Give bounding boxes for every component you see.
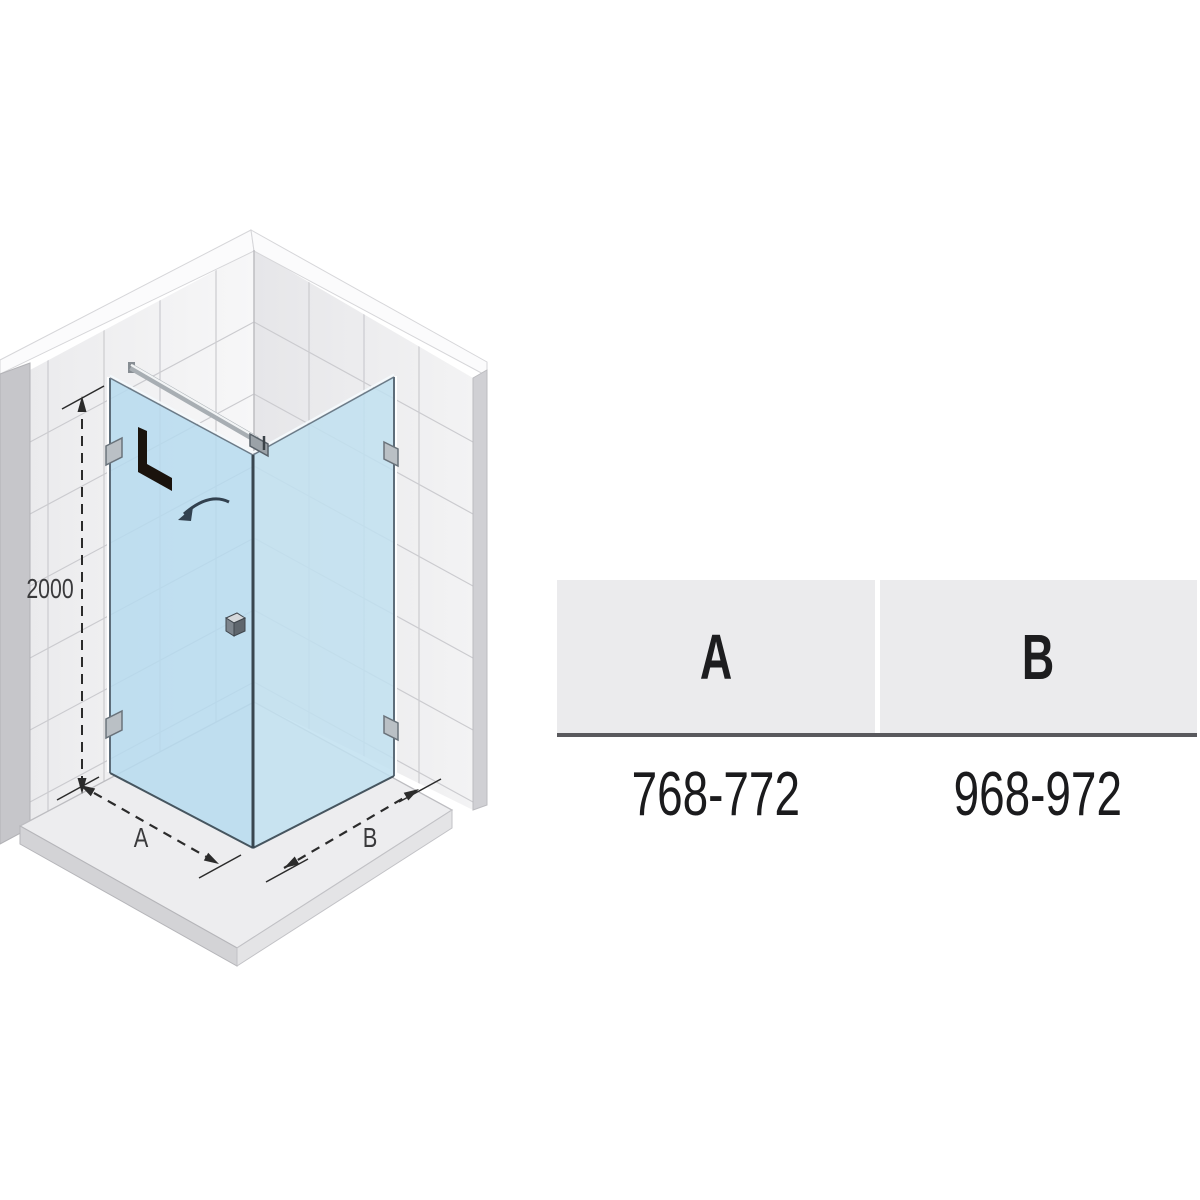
table-header-b: B — [880, 580, 1198, 733]
right-wall-side-face — [473, 370, 487, 810]
side-b-label: B — [363, 822, 378, 853]
table-value-a: 768-772 — [557, 759, 875, 830]
shower-enclosure-dimension-sheet: L 2000 A B — [0, 0, 1200, 1200]
glass-door — [108, 376, 253, 849]
dimension-table: A B 768-772 968-972 — [557, 580, 1197, 830]
door-knob — [226, 613, 245, 636]
left-wall-side-face — [0, 363, 30, 844]
glass-side-panel — [253, 375, 396, 849]
dimension-table-value-row: 768-772 968-972 — [557, 759, 1197, 830]
table-header-a: A — [557, 580, 875, 733]
height-dimension-label: 2000 — [26, 573, 73, 605]
side-a-label: A — [134, 822, 149, 853]
table-divider — [557, 733, 1197, 737]
table-value-b: 968-972 — [880, 759, 1198, 830]
dimension-table-header-row: A B — [557, 580, 1197, 733]
